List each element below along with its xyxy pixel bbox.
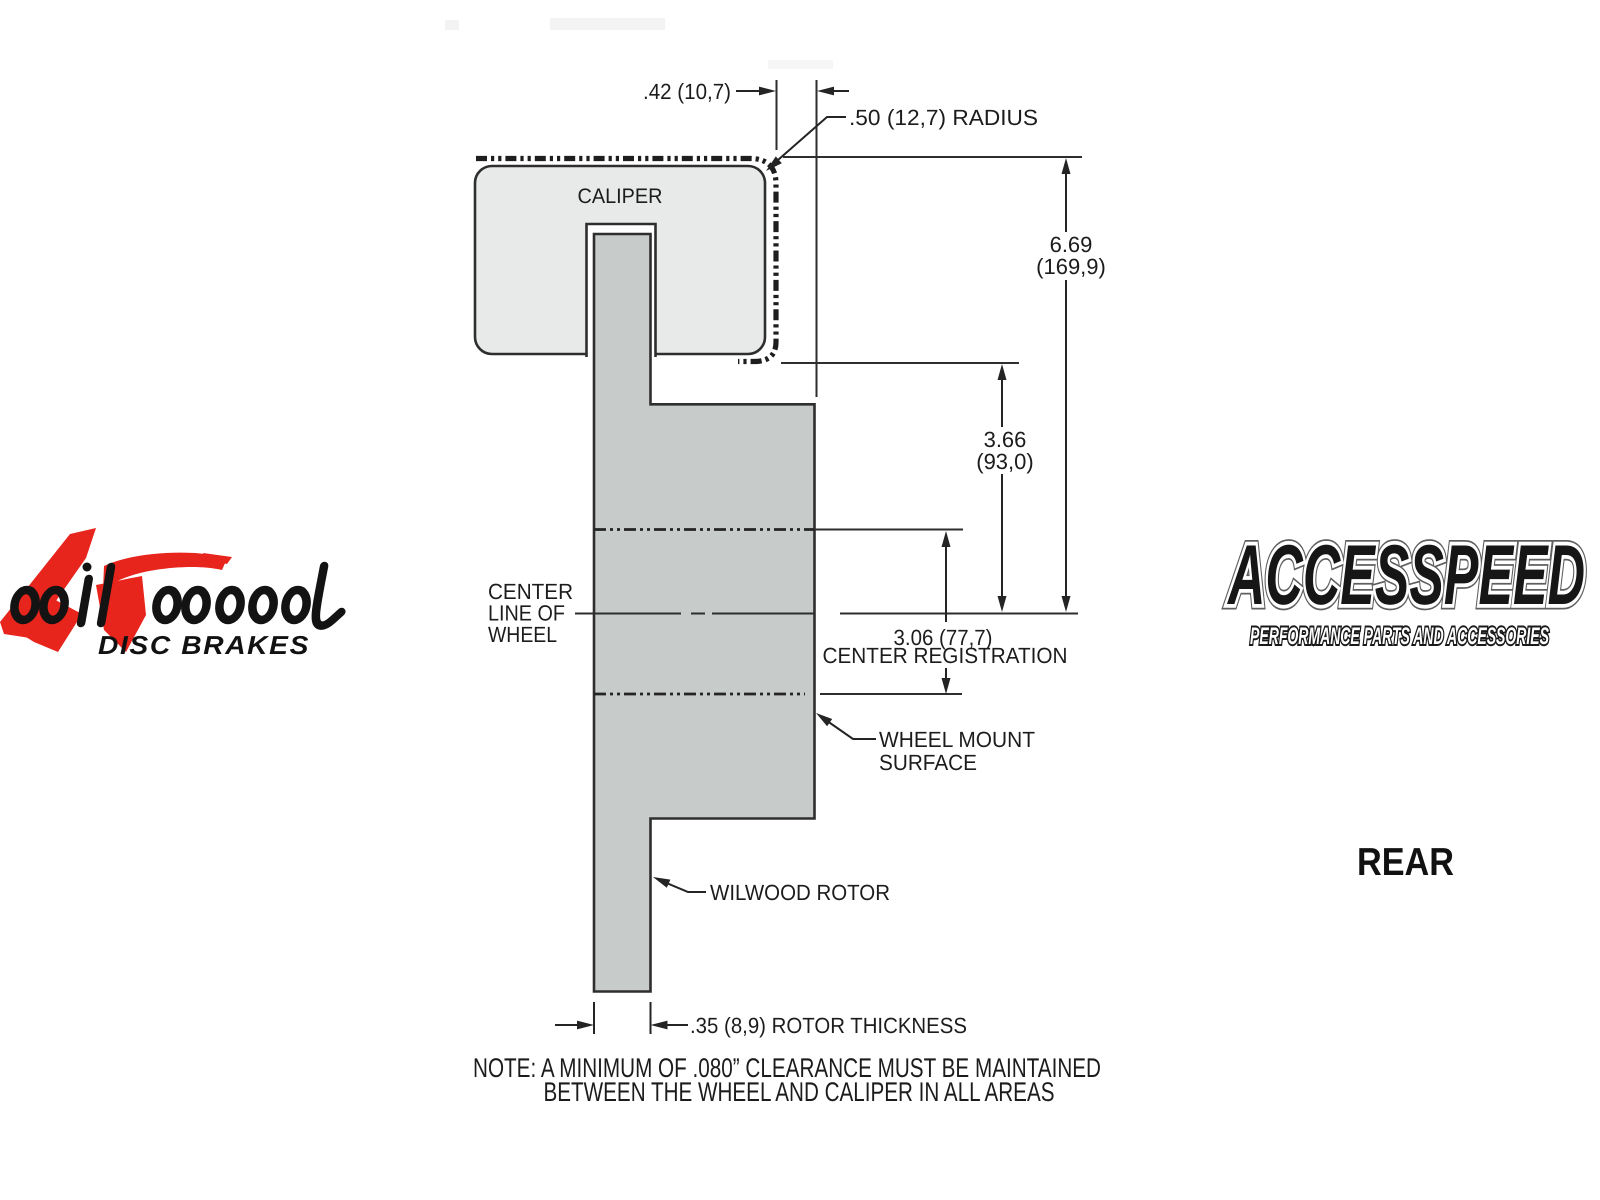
- svg-text:.50 (12,7) RADIUS: .50 (12,7) RADIUS: [849, 105, 1038, 130]
- svg-text:DISC BRAKES: DISC BRAKES: [98, 630, 310, 660]
- svg-text:WILWOOD ROTOR: WILWOOD ROTOR: [710, 880, 890, 905]
- svg-text:SURFACE: SURFACE: [879, 750, 977, 775]
- svg-text:(169,9): (169,9): [1036, 254, 1106, 279]
- svg-text:(93,0): (93,0): [976, 449, 1033, 474]
- svg-text:WHEEL MOUNT: WHEEL MOUNT: [879, 727, 1035, 752]
- svg-text:CENTER REGISTRATION: CENTER REGISTRATION: [823, 643, 1068, 668]
- svg-text:WHEEL: WHEEL: [488, 622, 557, 647]
- svg-text:.42 (10,7): .42 (10,7): [643, 79, 731, 104]
- svg-text:BETWEEN THE WHEEL AND CALIPER: BETWEEN THE WHEEL AND CALIPER IN ALL ARE…: [544, 1077, 1055, 1107]
- svg-text:.35 (8,9) ROTOR THICKNESS: .35 (8,9) ROTOR THICKNESS: [690, 1013, 967, 1038]
- svg-text:REAR: REAR: [1357, 841, 1454, 884]
- svg-text:PERFORMANCE PARTS AND ACCESSOR: PERFORMANCE PARTS AND ACCESSORIES: [1250, 623, 1549, 650]
- svg-text:CALIPER: CALIPER: [578, 185, 663, 208]
- svg-text:ACCESSPEED: ACCESSPEED: [1227, 528, 1585, 623]
